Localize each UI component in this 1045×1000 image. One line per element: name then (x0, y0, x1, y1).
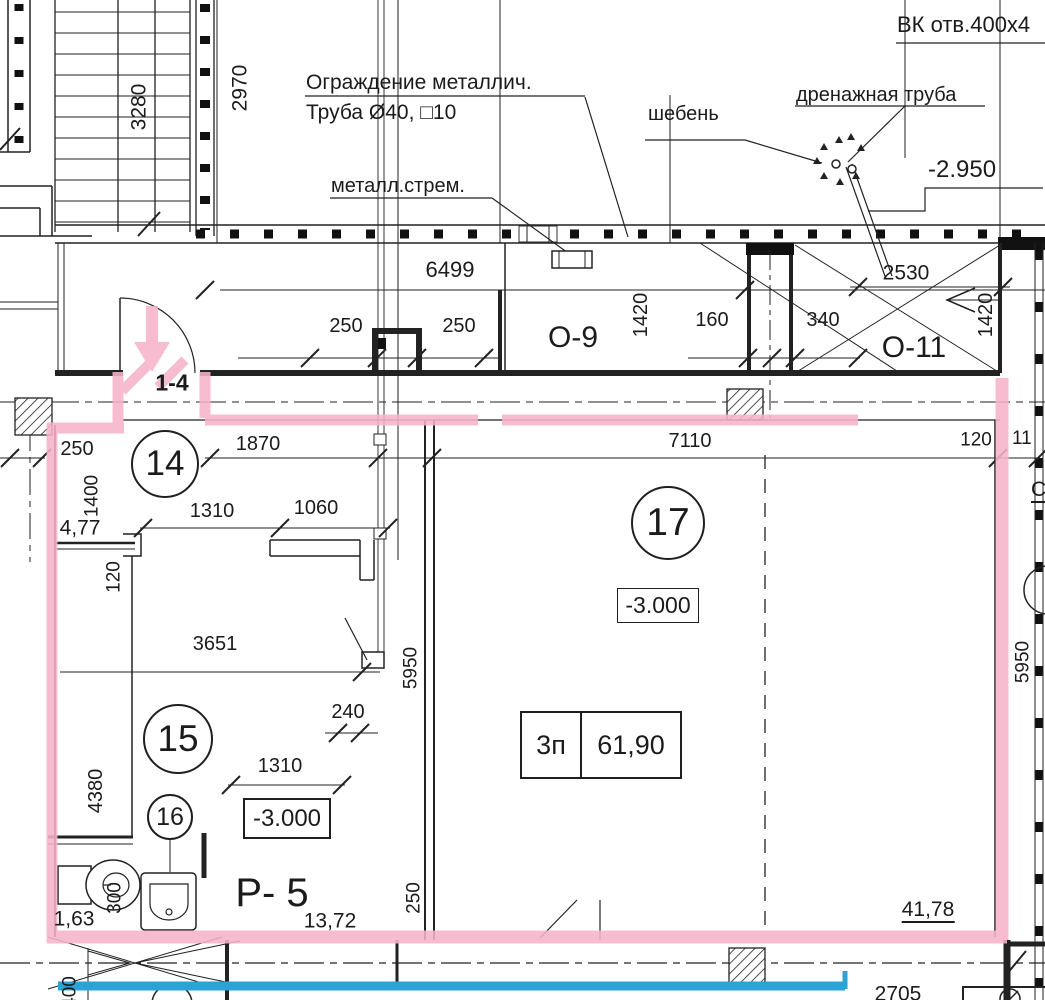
window-o9-label: О-9 (548, 323, 598, 353)
dim-250-left: 250 (329, 316, 362, 336)
drain-pipe-label: дренажная труба (796, 85, 956, 105)
dim-4380: 4380 (86, 769, 106, 814)
hatch-column-left (15, 398, 52, 435)
dim-1420-o11: 1420 (976, 293, 996, 338)
vertical-wall-band (196, 0, 214, 236)
dim-240: 240 (331, 702, 364, 722)
dim-7110: 7110 (668, 431, 711, 451)
dim-400-cut: 400 (61, 976, 80, 1000)
dim-300: 300 (106, 882, 125, 914)
dim-120-right: 120 (960, 431, 992, 450)
room-14-number: 14 (146, 444, 185, 484)
dim-2705-cut: 2705 (875, 984, 922, 1000)
area-type-cell: 3п (522, 713, 582, 777)
room-p5-label: Р- 5 (235, 873, 308, 913)
dim-41-78: 41,78 (902, 899, 955, 923)
dim-2530: 2530 (883, 263, 930, 284)
sink-icon (141, 839, 196, 930)
gravel-label: шебень (648, 104, 719, 124)
dim-13-72: 13,72 (304, 911, 357, 932)
metal-ladder-label: металл.стрем. (331, 176, 465, 196)
door-mark: 1-4 (155, 372, 188, 395)
window-row (55, 243, 1010, 418)
dim-1400: 1400 (83, 475, 102, 517)
room-bubble-15: 15 (143, 704, 213, 774)
dim-1-63: 1,63 (54, 909, 95, 930)
dim-1420-o9: 1420 (631, 293, 651, 338)
room-bubble-14: 14 (131, 430, 199, 498)
dim-1060: 1060 (294, 498, 339, 518)
area-table: 3п 61,90 (520, 711, 682, 779)
dim-1310-top: 1310 (190, 501, 235, 521)
fence-label-line1: Ограждение металлич. (306, 72, 532, 93)
note-cut-right: С (1031, 479, 1045, 503)
staircase (55, 0, 190, 236)
toilet-icon (58, 860, 140, 910)
dim-4-77: 4,77 (60, 518, 101, 539)
window-o11-label: О-11 (882, 333, 946, 363)
dim-250-right: 250 (442, 316, 475, 336)
dim-1870: 1870 (236, 434, 281, 454)
room-15-number: 15 (157, 718, 198, 760)
dim-2970: 2970 (230, 65, 251, 112)
plan-linework (0, 0, 1045, 1000)
blue-utility-line (58, 971, 845, 989)
room-17-number: 17 (646, 501, 689, 545)
elevation-room15-value: -3.000 (253, 805, 321, 833)
room-bubble-17: 17 (631, 486, 705, 560)
dim-250-room14: 250 (60, 439, 93, 459)
pink-highlight-path (47, 306, 1007, 942)
gravel-symbol (813, 133, 865, 185)
fence-label-line2: Труба Ø40, □10 (306, 102, 456, 123)
area-value-number: 61,90 (597, 730, 665, 761)
dim-5950-left: 5950 (402, 647, 421, 689)
area-type-value: 3п (536, 730, 566, 761)
area-value-cell: 61,90 (582, 713, 680, 777)
hatch-column-bottom (729, 948, 765, 983)
dim-6499: 6499 (426, 259, 475, 281)
room-16-number: 16 (156, 803, 184, 832)
dim-5950-right: 5950 (1014, 641, 1033, 683)
dim-3280: 3280 (129, 84, 150, 131)
dim-120-small: 120 (105, 561, 124, 593)
room-bubble-16: 16 (147, 794, 193, 840)
floor-plan: ВК отв.400x4 Ограждение металлич. Труба … (0, 0, 1045, 1000)
dim-340: 340 (806, 310, 839, 330)
dim-3651: 3651 (193, 634, 238, 654)
dim-1310-bottom: 1310 (258, 756, 303, 776)
dim-160: 160 (695, 310, 728, 330)
elevation-box-room15: -3.000 (243, 798, 331, 839)
vk-opening-label: ВК отв.400x4 (897, 14, 1030, 36)
elevation-box-room17: -3.000 (617, 588, 699, 623)
dim-11-cut: 11 (1012, 429, 1032, 448)
dim-250-bottom: 250 (405, 882, 424, 914)
elevation-top-right: -2.950 (928, 158, 996, 182)
elevation-room17-value: -3.000 (625, 592, 690, 619)
